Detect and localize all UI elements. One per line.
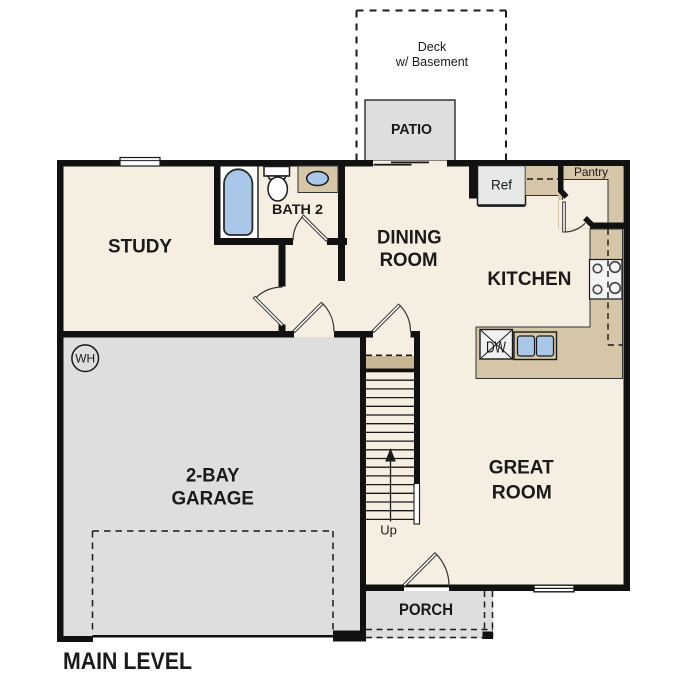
svg-text:KITCHEN: KITCHEN: [487, 269, 571, 290]
svg-text:PATIO: PATIO: [391, 121, 432, 138]
svg-text:Ref: Ref: [491, 178, 512, 193]
svg-text:WH: WH: [75, 352, 95, 366]
svg-text:DINING: DINING: [377, 228, 442, 249]
svg-text:2-BAY: 2-BAY: [186, 466, 240, 487]
svg-text:ROOM: ROOM: [380, 250, 438, 271]
svg-text:MAIN LEVEL: MAIN LEVEL: [63, 648, 192, 675]
svg-text:GARAGE: GARAGE: [171, 489, 254, 510]
svg-text:STUDY: STUDY: [108, 236, 172, 257]
svg-text:Up: Up: [380, 523, 397, 538]
svg-text:w/ Basement: w/ Basement: [395, 55, 469, 69]
svg-text:Deck: Deck: [418, 40, 447, 54]
svg-text:Pantry: Pantry: [574, 165, 608, 179]
svg-text:GREAT: GREAT: [489, 458, 554, 479]
svg-text:ROOM: ROOM: [492, 482, 552, 503]
svg-text:PORCH: PORCH: [399, 600, 453, 619]
svg-text:DW: DW: [486, 340, 507, 357]
svg-text:BATH 2: BATH 2: [272, 202, 323, 217]
